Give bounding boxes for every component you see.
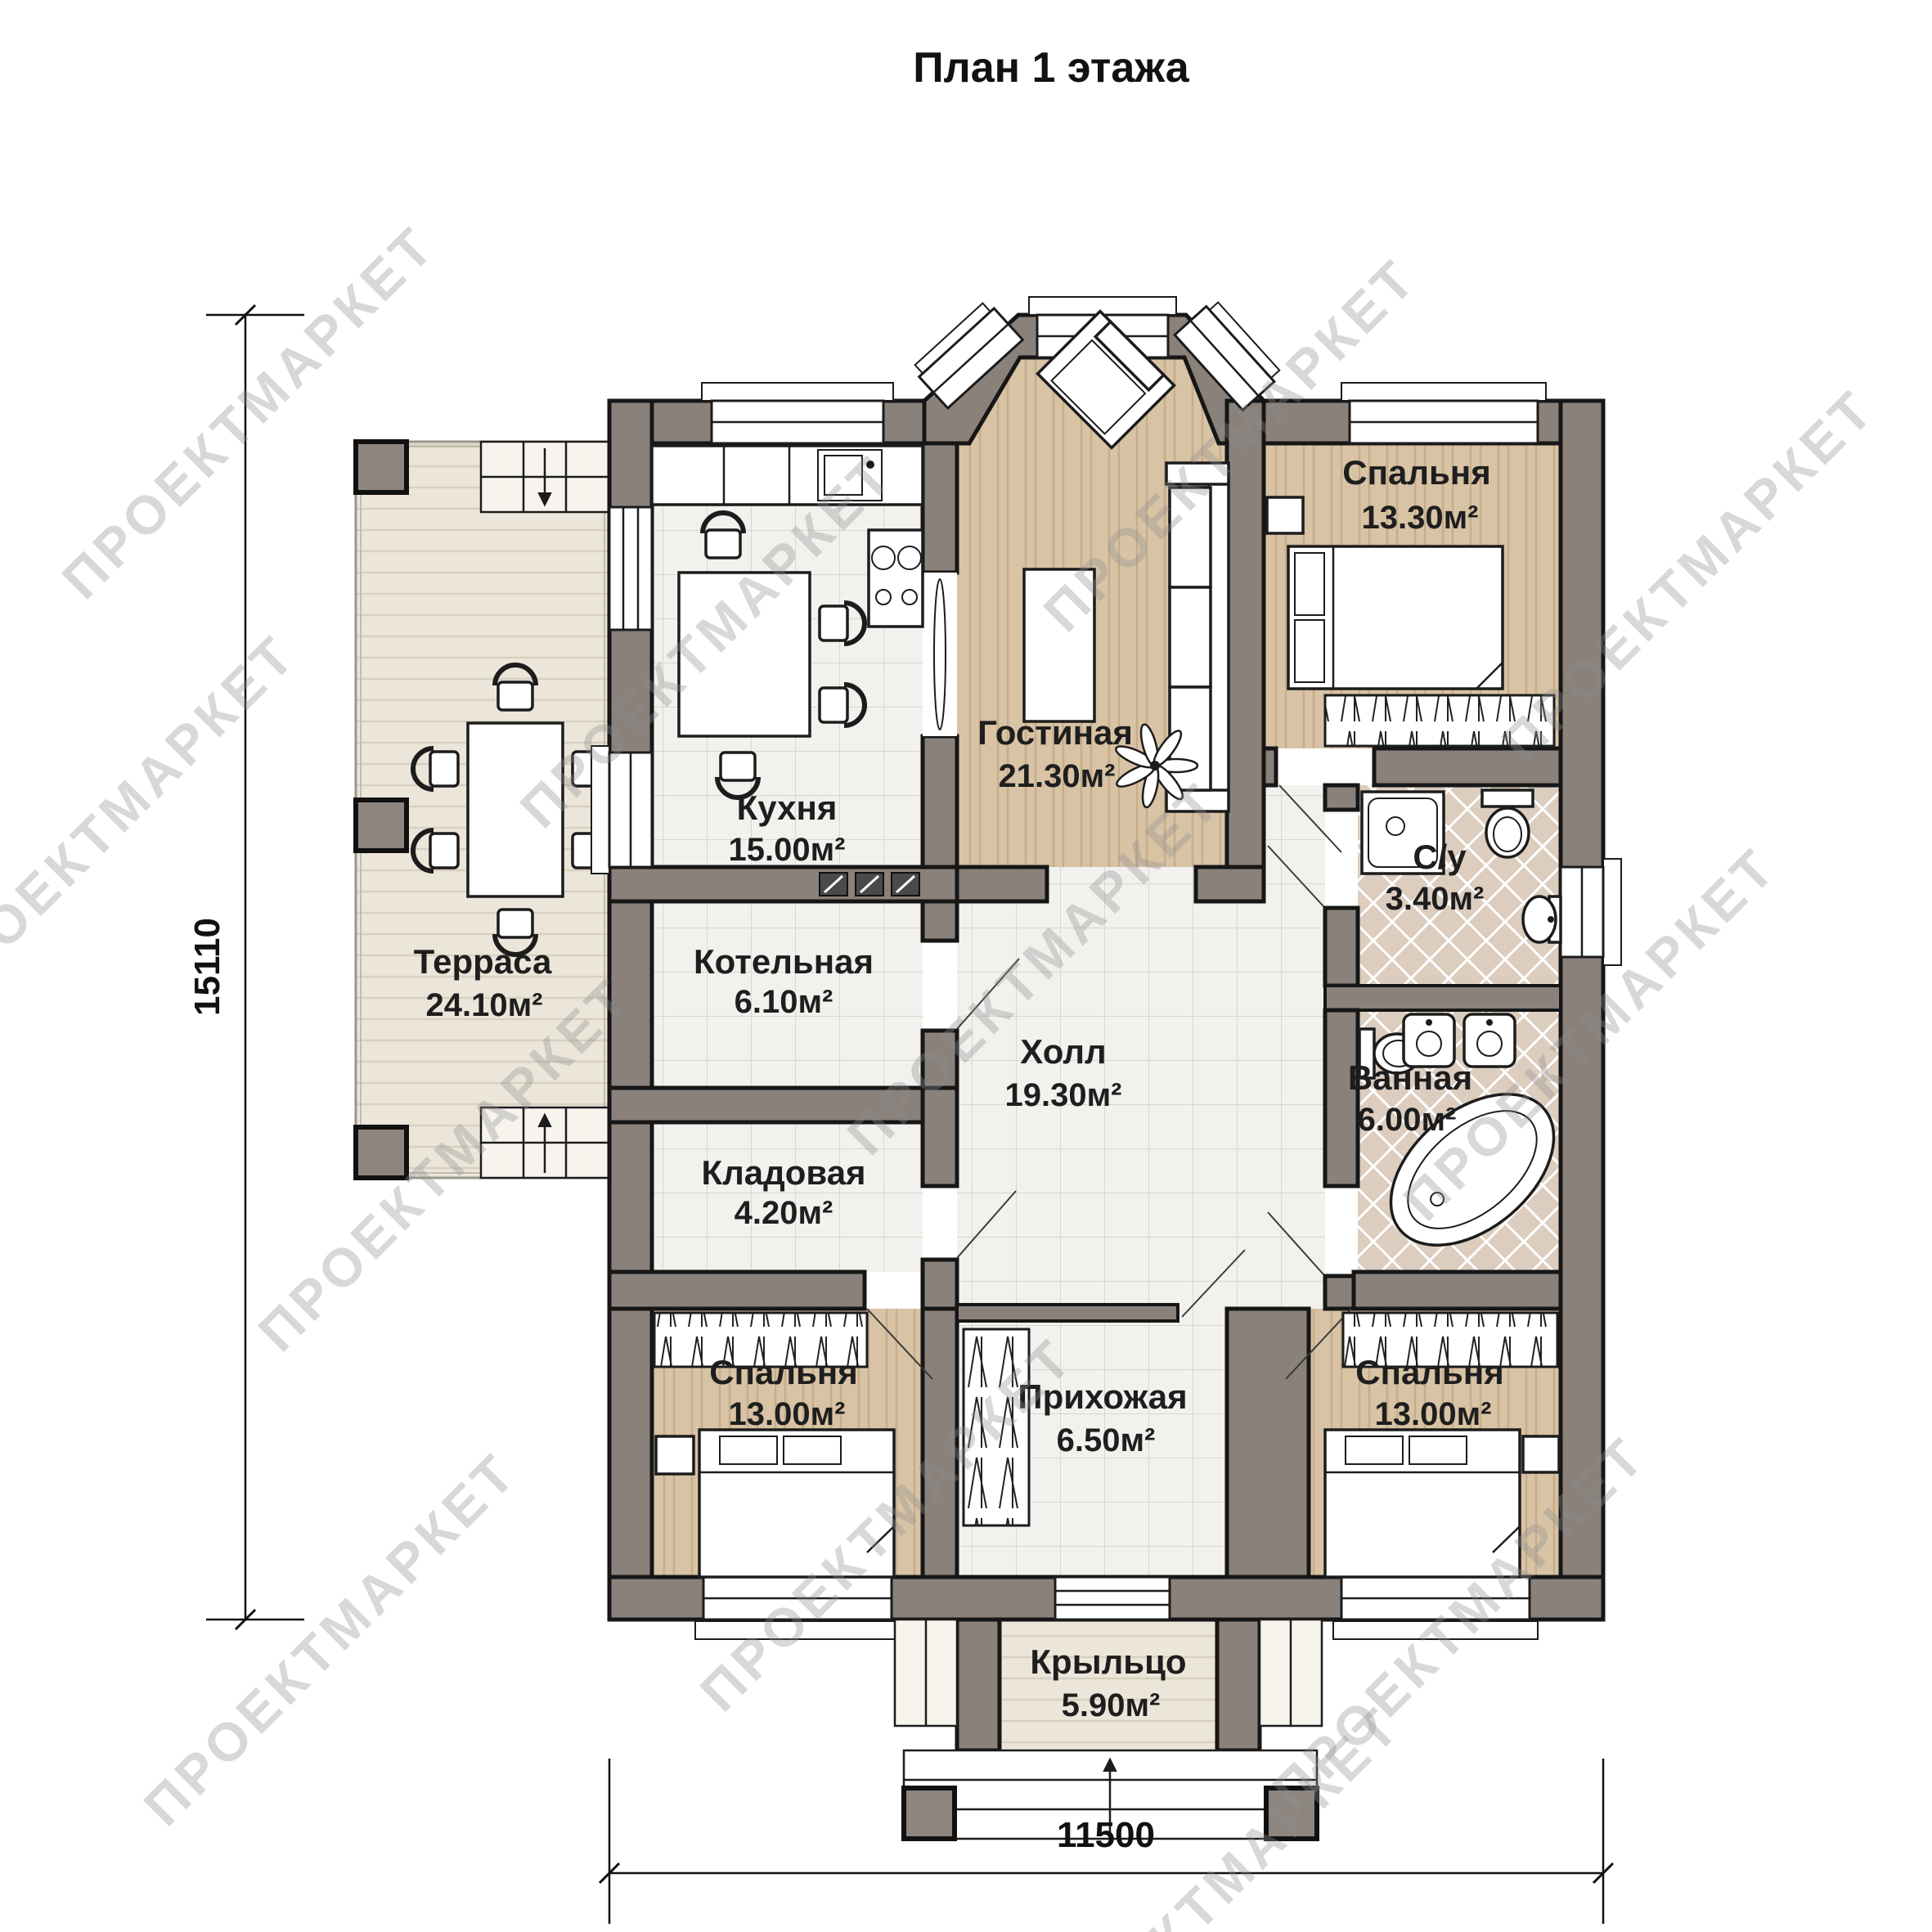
room-label: Холл xyxy=(1020,1032,1106,1071)
room-label: Спальня xyxy=(709,1353,857,1391)
watermark-text: ПРОЕКТМАРКЕТ xyxy=(132,1440,528,1837)
room-label: Кладовая xyxy=(701,1153,865,1192)
nightstand xyxy=(1523,1436,1559,1472)
room-label: Терраса xyxy=(414,942,552,981)
room-label: С/у xyxy=(1413,838,1467,876)
porch-post xyxy=(904,1788,955,1839)
porch-wall xyxy=(1217,1620,1260,1750)
width-dimension: 11500 xyxy=(1057,1815,1155,1855)
room-area: 6.10м² xyxy=(735,984,833,1020)
room-label: Кухня xyxy=(737,789,838,827)
floor-plan-drawing: План 1 этажа xyxy=(0,0,1932,1932)
room-label: Спальня xyxy=(1355,1353,1503,1391)
room-area: 6.50м² xyxy=(1057,1422,1156,1458)
terrace-post xyxy=(356,800,407,851)
room-area: 6.00м² xyxy=(1358,1102,1457,1138)
room-area: 19.30м² xyxy=(1004,1077,1121,1113)
room-label: Котельная xyxy=(694,942,874,981)
height-dimension: 15110 xyxy=(187,918,227,1016)
room-area: 13.00м² xyxy=(728,1396,845,1432)
porch-wall xyxy=(957,1620,1000,1750)
room-label: Ванная xyxy=(1348,1058,1472,1097)
room-label: Гостиная xyxy=(977,713,1133,752)
entry-partition-wall xyxy=(957,1305,1178,1321)
dimension-left: 15110 xyxy=(187,305,304,1629)
nightstand xyxy=(1267,497,1303,533)
hall-corridor-floor xyxy=(1264,785,1325,867)
room-area: 13.30м² xyxy=(1361,500,1478,536)
room-area: 13.00м² xyxy=(1374,1396,1491,1432)
wc-toilet xyxy=(1482,790,1533,857)
room-label: Крыльцо xyxy=(1030,1642,1186,1681)
room-area: 5.90м² xyxy=(1062,1687,1161,1723)
nightstand xyxy=(656,1436,694,1474)
terrace-post xyxy=(356,442,407,492)
entry-door xyxy=(1055,1577,1170,1620)
floor-plan-page: План 1 этажа xyxy=(0,0,1932,1932)
room-area: 4.20м² xyxy=(735,1195,833,1231)
room-area: 3.40м² xyxy=(1386,881,1485,917)
bedroom-top-bed xyxy=(1288,546,1503,689)
room-area: 21.30м² xyxy=(998,758,1115,794)
wc-sink xyxy=(1523,896,1561,942)
porch-floor xyxy=(1000,1620,1217,1750)
watermark-text: ПРОЕКТМАРКЕТ xyxy=(0,622,308,1019)
room-label: Спальня xyxy=(1342,453,1490,492)
boiler-vents xyxy=(820,873,919,896)
kitchen-stove xyxy=(869,530,923,627)
page-title: План 1 этажа xyxy=(913,44,1189,92)
room-area: 24.10м² xyxy=(425,987,542,1023)
room-area: 15.00м² xyxy=(728,832,845,868)
sliding-door-leaf xyxy=(934,579,946,730)
terrace-door xyxy=(609,507,652,630)
